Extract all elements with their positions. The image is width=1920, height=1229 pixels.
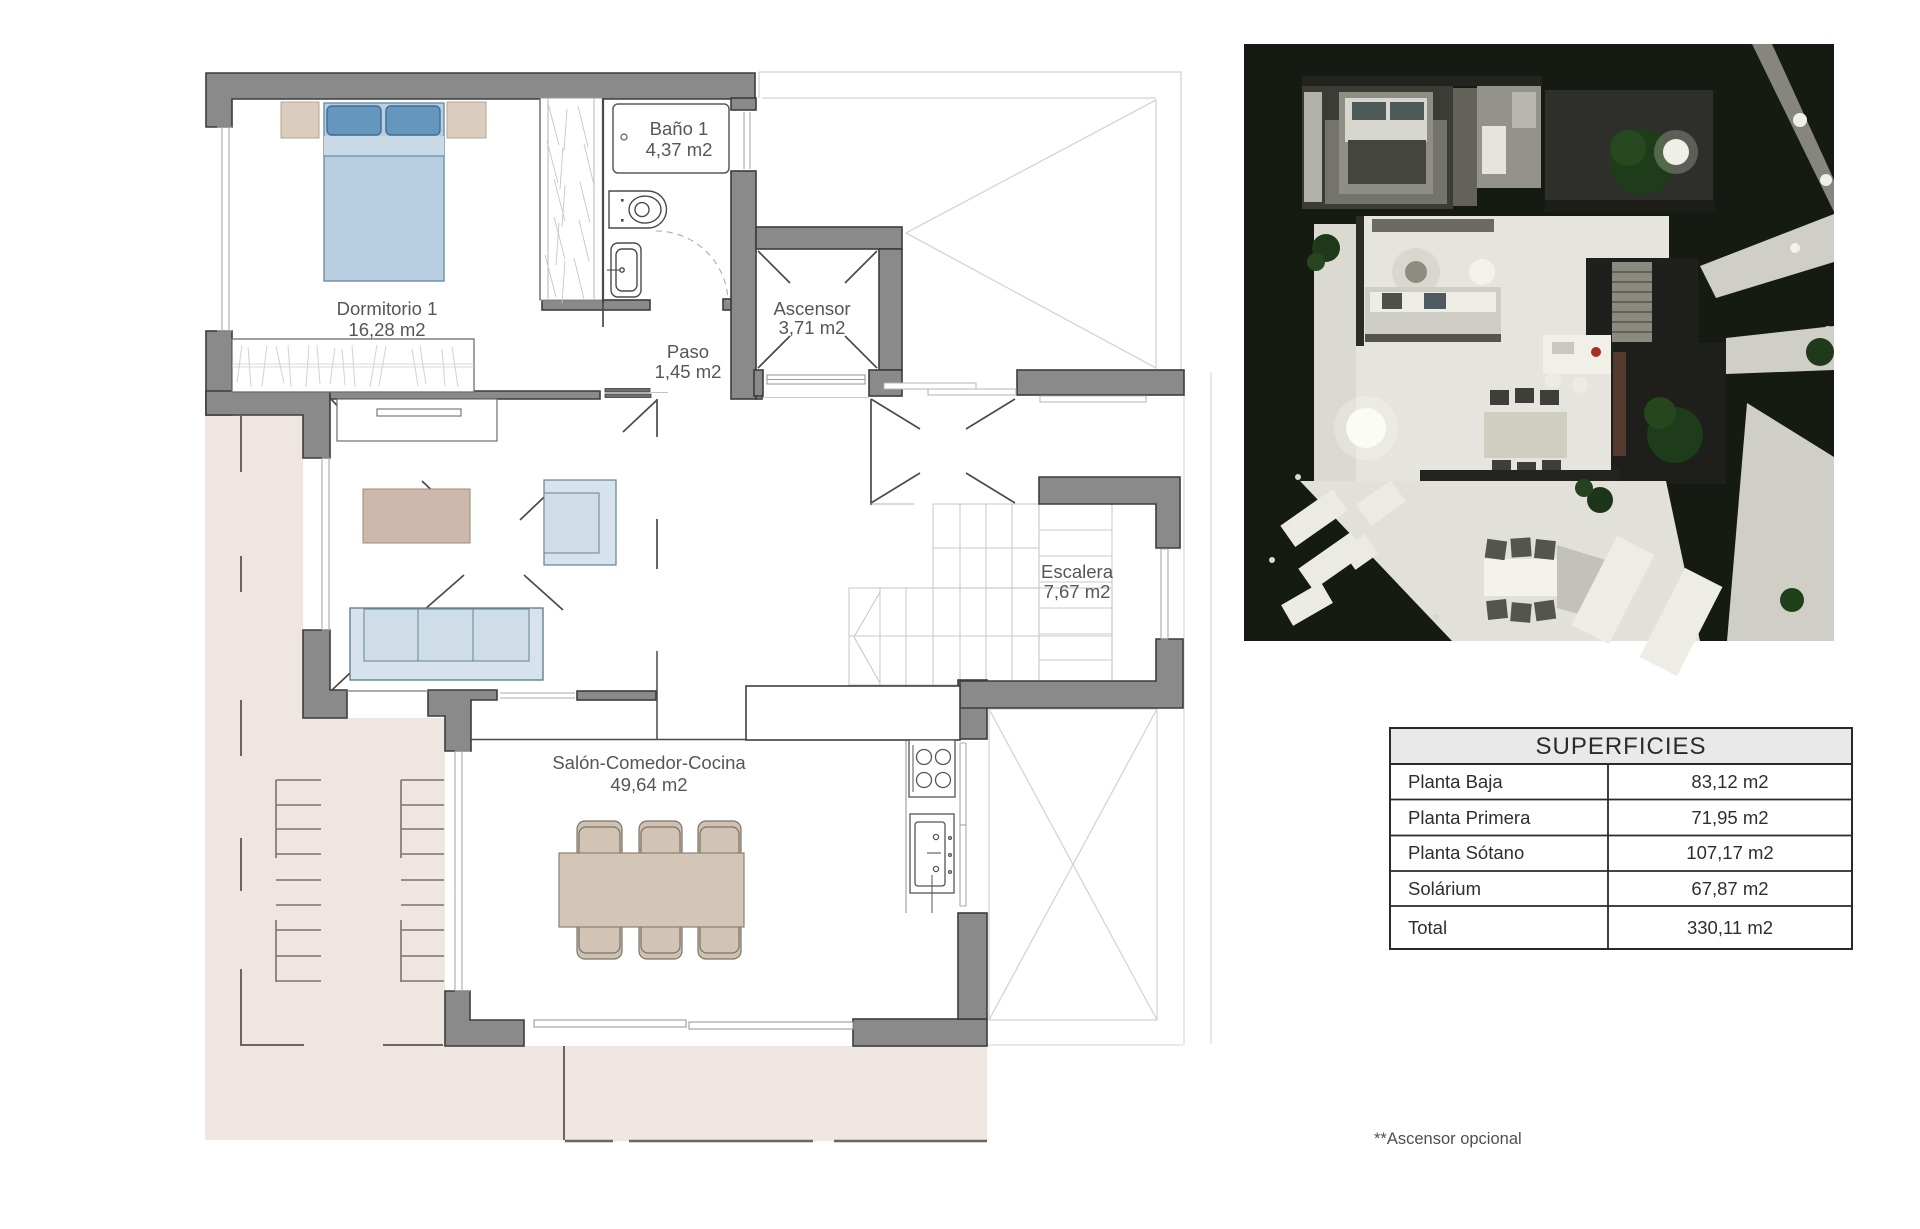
svg-text:Ascensor: Ascensor: [773, 298, 850, 319]
svg-text:67,87 m2: 67,87 m2: [1691, 878, 1768, 899]
svg-text:SUPERFICIES: SUPERFICIES: [1535, 733, 1706, 760]
svg-text:71,95 m2: 71,95 m2: [1691, 807, 1768, 828]
svg-text:7,67 m2: 7,67 m2: [1044, 581, 1111, 602]
svg-text:16,28 m2: 16,28 m2: [348, 319, 425, 340]
svg-text:330,11 m2: 330,11 m2: [1687, 917, 1773, 938]
svg-text:4,37 m2: 4,37 m2: [646, 139, 713, 160]
svg-text:3,71 m2: 3,71 m2: [779, 317, 846, 338]
svg-text:107,17 m2: 107,17 m2: [1686, 842, 1773, 863]
svg-text:Planta Primera: Planta Primera: [1408, 807, 1531, 828]
svg-text:Dormitorio 1: Dormitorio 1: [337, 298, 438, 319]
svg-text:**Ascensor opcional: **Ascensor opcional: [1374, 1130, 1522, 1148]
svg-text:1,45 m2: 1,45 m2: [655, 361, 722, 382]
svg-text:Planta Baja: Planta Baja: [1408, 771, 1503, 792]
svg-text:Planta Sótano: Planta Sótano: [1408, 842, 1524, 863]
svg-text:Paso: Paso: [667, 341, 709, 362]
svg-text:Escalera: Escalera: [1041, 561, 1114, 582]
svg-text:Baño 1: Baño 1: [650, 118, 709, 139]
svg-text:Solárium: Solárium: [1408, 878, 1481, 899]
svg-text:Total: Total: [1408, 917, 1447, 938]
svg-text:Salón-Comedor-Cocina: Salón-Comedor-Cocina: [552, 752, 746, 773]
svg-text:83,12 m2: 83,12 m2: [1691, 771, 1768, 792]
svg-text:49,64 m2: 49,64 m2: [610, 774, 687, 795]
